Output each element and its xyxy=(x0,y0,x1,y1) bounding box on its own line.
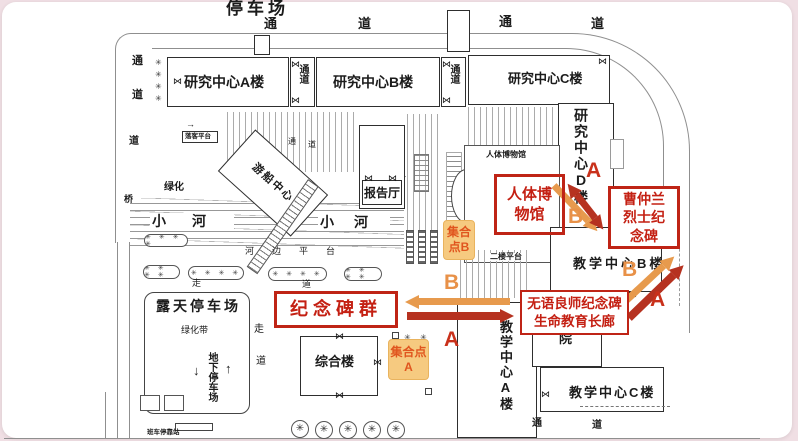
riverside-platform-label: 河边平台 xyxy=(245,247,353,256)
page: { "colors": { "page_background": "#f0dfe… xyxy=(0,0,798,441)
door-icon: ⋈ xyxy=(364,174,373,183)
small-structure xyxy=(140,395,160,411)
plaza-dao: 道 xyxy=(308,141,316,149)
route-b-arrow-horizontal xyxy=(405,298,510,305)
left-road-dao: 道 xyxy=(132,90,143,101)
silent-mentor-line2: 生命教育长廊 xyxy=(534,313,615,331)
annotation-caozhonglan-box: 曹仲兰烈士纪念碑 xyxy=(608,186,680,249)
small-structure xyxy=(610,139,624,169)
crosswalk-strip xyxy=(418,230,426,264)
left-road-dao-2: 道 xyxy=(129,137,139,147)
door-icon: ⋈ xyxy=(388,174,397,183)
bus-stop-shape xyxy=(175,423,213,431)
building-complex-label: 综合楼 xyxy=(315,355,354,368)
road-line xyxy=(105,392,106,438)
ramp-down-arrow: ↓ xyxy=(193,364,200,377)
left-road-lower xyxy=(117,242,130,438)
report-hall-label-box: 报告厅 xyxy=(362,180,402,205)
door-icon: ⋈ xyxy=(373,358,382,367)
door-icon: ⋈ xyxy=(335,332,344,341)
small-square xyxy=(392,332,399,339)
tree-circle-icon: ✳ xyxy=(315,421,333,439)
route-a-marker-1: A xyxy=(586,160,601,181)
dropoff-arrow: → xyxy=(186,120,195,129)
door-icon: ⋈ xyxy=(291,60,300,69)
river-label-2: 小河 xyxy=(318,214,390,230)
green-belt-label: 绿化带 xyxy=(181,326,208,335)
bottom-road-line xyxy=(4,438,760,439)
silent-mentor-line1: 无语良师纪念碑 xyxy=(527,295,622,313)
tree-icon: ✳ xyxy=(155,83,162,91)
map-card: 停车场 通 道 通 道 通 道 道 桥 ✳ ✳ ✳ ✳ 研究中心A楼 ⋈ 通道 … xyxy=(2,2,792,438)
arrow-shaft xyxy=(419,298,510,305)
small-square xyxy=(425,388,432,395)
building-teaching-c-label: 教学中心C楼 xyxy=(569,386,655,399)
dropoff-platform-label: 落客平台 xyxy=(185,134,211,141)
crosswalk-strip xyxy=(406,230,414,264)
building-bump xyxy=(254,35,270,55)
door-icon: ⋈ xyxy=(173,77,182,86)
tree-icon: ✳ xyxy=(368,425,376,435)
dashed-path xyxy=(580,406,670,408)
arrow-head xyxy=(500,309,514,323)
left-road-tong: 通 xyxy=(132,56,143,67)
annotation-monuments-box: 纪念碑群 xyxy=(274,291,398,328)
building-boat-center-label: 游船中心 xyxy=(250,162,296,205)
bottom-road-dao: 道 xyxy=(592,421,602,431)
route-a-arrow-horizontal xyxy=(407,312,514,320)
route-a-marker-3: A xyxy=(444,329,459,350)
tree-icon: ✳ xyxy=(296,424,304,434)
bottom-road-tong: 通 xyxy=(532,419,542,429)
tree-circle-icon: ✳ xyxy=(387,421,405,439)
gate-structure xyxy=(447,10,470,52)
tree-icon: ✳ xyxy=(155,95,162,103)
planter-box: ✳ ✳ ✳ ✳ xyxy=(143,265,180,279)
tree-circle-icon: ✳ xyxy=(363,421,381,439)
tree-icon: ✳ xyxy=(320,425,328,435)
route-b-marker-1: B xyxy=(568,206,583,227)
route-a-marker-2: A xyxy=(650,289,665,310)
building-report-hall-label: 报告厅 xyxy=(364,187,400,199)
path-dao: 道 xyxy=(256,357,266,367)
top-road-tong-1: 通 xyxy=(264,17,277,30)
top-road-dao-1: 道 xyxy=(358,17,371,30)
tree-icon: ✳ xyxy=(155,71,162,79)
route-b-marker-3: B xyxy=(444,272,459,293)
door-icon: ⋈ xyxy=(442,60,451,69)
planter-box: ✳ ✳ ✳ ✳ xyxy=(344,267,382,281)
tree-circle-icon: ✳ xyxy=(291,420,309,438)
building-research-c-label: 研究中心C楼 xyxy=(508,72,582,85)
plaza-hatch-3 xyxy=(468,107,558,145)
door-icon: ⋈ xyxy=(598,57,607,66)
tree-circle-icon: ✳ xyxy=(339,421,357,439)
door-icon: ⋈ xyxy=(541,390,550,399)
ramp-up-arrow: ↑ xyxy=(225,362,232,375)
small-structure xyxy=(164,395,184,411)
assembly-point-a-box: 集合点A xyxy=(388,339,429,380)
walkway-zou: 走 xyxy=(192,279,201,288)
arrow-head xyxy=(405,295,419,309)
annotation-museum-box: 人体博物馆 xyxy=(494,174,565,235)
building-research-b-label: 研究中心B楼 xyxy=(333,75,413,89)
greenery-label: 绿化 xyxy=(164,183,184,193)
door-icon: ⋈ xyxy=(335,391,344,400)
annotation-silent-mentor-box: 无语良师纪念碑 生命教育长廊 xyxy=(520,290,629,335)
underground-parking-label: 地下停车场 xyxy=(206,352,216,412)
building-research-a-label: 研究中心A楼 xyxy=(184,75,264,89)
tree-icon: ✳ xyxy=(344,425,352,435)
top-road-dao-2: 道 xyxy=(591,17,604,30)
path-zou: 走 xyxy=(254,325,264,335)
planter-box: ✳ ✳ ✳ ✳ xyxy=(144,234,188,247)
assembly-point-b-box: 集合点B xyxy=(443,220,475,260)
second-floor-platform-label: 二楼平台 xyxy=(489,253,523,261)
plaza-tong: 通 xyxy=(288,138,296,146)
page-title: 停车场 xyxy=(226,0,289,17)
building-teaching-a-label: 教学中心A楼 xyxy=(499,320,512,420)
top-road-tong-2: 通 xyxy=(499,15,512,28)
arrow-shaft xyxy=(407,312,500,320)
door-icon: ⋈ xyxy=(442,96,451,105)
crosswalk-strip xyxy=(430,230,438,264)
museum-small-label: 人体博物馆 xyxy=(486,151,526,159)
river-label-1: 小河 xyxy=(150,213,234,229)
route-b-marker-2: B xyxy=(622,259,637,280)
planter-box: ✳ ✳ ✳ ✳ xyxy=(268,267,327,281)
building-teaching-b-label: 教学中心B楼 xyxy=(573,257,665,270)
open-parking-label: 露天停车场 xyxy=(156,299,241,313)
tree-icon: ✳ xyxy=(392,425,400,435)
door-icon: ⋈ xyxy=(291,96,300,105)
tree-icon: ✳ xyxy=(155,59,162,67)
bus-stop-label: 班车停靠站 xyxy=(147,430,180,437)
stairs-icon xyxy=(414,154,429,192)
walkway-dao: 道 xyxy=(302,280,311,289)
